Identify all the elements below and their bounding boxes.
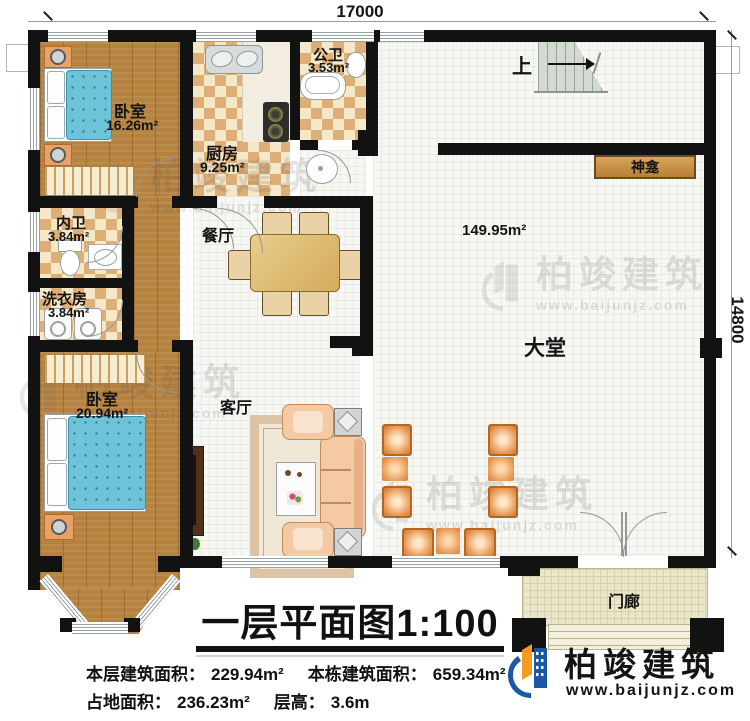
room-area-public-bath: 3.53m² — [308, 60, 349, 75]
wall-bath-south-b — [352, 140, 378, 150]
shrine-shelf: 神龛 — [594, 155, 696, 179]
hall-chair — [382, 424, 412, 456]
hall-floor — [373, 42, 704, 556]
right-dimension-label: 14800 — [727, 285, 747, 355]
hall-chair — [464, 528, 496, 558]
wall-bedroom-living — [180, 352, 193, 556]
dining-chair — [262, 288, 292, 316]
corridor-floor — [134, 196, 180, 352]
building-area-label: 本栋建筑面积： — [308, 665, 427, 684]
land-area-value: 236.23m² — [177, 693, 250, 712]
room-label-hall: 大堂 — [524, 332, 566, 362]
wall-bedroom-top-south — [28, 196, 138, 208]
stats-row-1: 本层建筑面积：229.94m²本栋建筑面积：659.34m² — [86, 660, 512, 685]
bay-window-front — [72, 622, 128, 634]
floor-area-label: 本层建筑面积： — [86, 665, 205, 684]
wall-dining-hall — [360, 208, 373, 336]
floor-area-value: 229.94m² — [211, 665, 284, 684]
wall-stub — [172, 196, 193, 208]
stairs-direction-label: 上 — [512, 50, 532, 79]
coffee-table — [276, 462, 316, 516]
bay-post — [158, 556, 180, 572]
shrine-label: 神龛 — [631, 157, 659, 177]
wall-right — [704, 30, 716, 556]
bathtub — [300, 72, 346, 100]
corner-bracket — [712, 46, 740, 74]
wardrobe — [44, 354, 146, 384]
dining-table — [250, 234, 340, 292]
title-underline — [196, 646, 504, 652]
window — [48, 30, 108, 42]
hall-side-table — [488, 457, 514, 481]
dim-tick — [699, 11, 709, 21]
brand-website: www.baijunjz.com — [566, 682, 736, 700]
nightstand — [44, 46, 72, 68]
stats-row-2: 占地面积：236.23m²层高：3.6m — [86, 688, 376, 713]
toilet-bowl — [60, 250, 80, 276]
side-table — [334, 408, 362, 436]
dim-tick — [727, 30, 737, 40]
window — [28, 88, 40, 150]
hall-chair — [382, 486, 412, 518]
kitchen-sink — [205, 45, 263, 74]
wall-corner-block — [352, 336, 373, 356]
sofa-single — [282, 522, 334, 558]
room-label-living: 客厅 — [220, 394, 252, 418]
wall-kitchen-south-a — [193, 196, 217, 208]
top-dimension-label: 17000 — [300, 2, 420, 22]
wall-stub — [330, 196, 373, 208]
hall-chair — [488, 424, 518, 456]
wall-kitchen-bath — [290, 42, 300, 140]
wall-laundry-bedroom — [28, 340, 138, 352]
hall-chair — [402, 528, 434, 558]
porch-pillar — [508, 556, 540, 576]
floor-height-label: 层高： — [274, 693, 325, 712]
room-label-porch: 门廊 — [608, 588, 640, 612]
building-area-value: 659.34m² — [433, 665, 506, 684]
window — [312, 30, 374, 42]
title-underline-thin — [196, 655, 504, 657]
dim-tick — [727, 546, 737, 556]
room-area-ensuite: 3.84m² — [48, 229, 89, 244]
dim-tick — [43, 11, 53, 21]
wall-bath-south-a — [300, 140, 318, 150]
brand-company: 柏竣建筑 — [564, 638, 720, 686]
room-area-bedroom-bottom: 20.94m² — [76, 405, 128, 421]
wall-right-pillar — [700, 338, 722, 358]
nightstand — [44, 144, 72, 166]
stairs-arrow-line — [548, 63, 586, 65]
dining-chair — [299, 288, 329, 316]
sofa-single — [282, 404, 334, 440]
plan-title-scale: 1:100 — [396, 603, 498, 645]
wall-ensuite-laundry — [28, 278, 134, 288]
hall-side-table — [382, 457, 408, 481]
brand-logo-icon — [504, 640, 558, 700]
window — [380, 30, 424, 42]
nightstand — [44, 514, 74, 540]
entry-door-opening — [578, 556, 668, 568]
window — [196, 30, 256, 42]
room-area-kitchen: 9.25m² — [200, 159, 244, 175]
room-label-dining: 餐厅 — [202, 222, 234, 246]
entry-door-leaf — [621, 512, 623, 556]
wardrobe — [44, 166, 134, 196]
room-area-bedroom-top: 16.26m² — [106, 117, 158, 133]
brand-logo: 柏竣建筑 www.baijunjz.com — [502, 636, 748, 718]
side-table — [334, 528, 362, 556]
wall-stub — [172, 340, 193, 352]
room-area-hall: 149.95m² — [462, 222, 526, 239]
room-area-laundry: 3.84m² — [48, 305, 89, 320]
window — [222, 556, 328, 568]
wall-bath-block-east — [366, 42, 378, 142]
bay-post — [40, 556, 62, 572]
plan-title: 一层平面图1:100 — [150, 592, 550, 647]
window — [28, 292, 40, 336]
stove — [263, 102, 289, 142]
plan-title-main: 一层平面图 — [201, 603, 396, 645]
land-area-label: 占地面积： — [86, 693, 171, 712]
floor-height-value: 3.6m — [331, 693, 370, 712]
window — [392, 556, 500, 568]
entry-door-leaf — [625, 512, 627, 556]
hall-side-table — [436, 528, 460, 554]
stairs-base-line — [534, 91, 608, 93]
window — [28, 212, 40, 252]
wall-bedroom-kitchen — [180, 42, 193, 196]
bed-duvet — [68, 416, 146, 510]
floor-plan-page: 17000 14800 柏竣建筑 www.baijunjz.com 柏竣建筑 w… — [0, 0, 750, 721]
wall-shrine — [438, 143, 704, 155]
hall-chair — [488, 486, 518, 518]
